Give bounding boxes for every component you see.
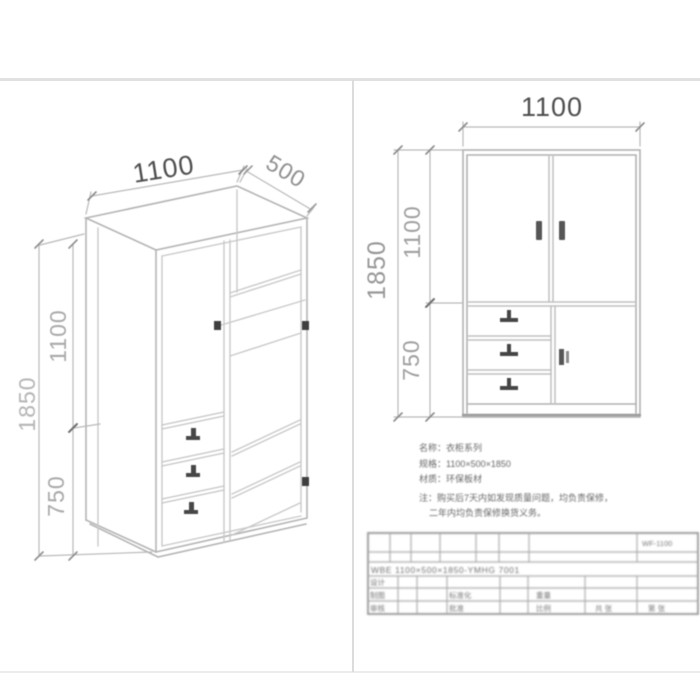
iso-dim-depth-label: 500: [262, 149, 311, 193]
front-lower-door-handle: [559, 349, 569, 365]
cad-drawing-page: 1100 500 1850 1100 750: [0, 0, 700, 700]
front-dim-height-label: 1850: [363, 240, 391, 300]
title-block-mid2-label: 标准化: [449, 590, 472, 600]
iso-drawers: [162, 412, 224, 503]
title-block-right3-label: 比例: [536, 603, 551, 613]
front-dim-upper-label: 1100: [399, 205, 425, 258]
note-line: 注：购买后7天内如发现质量问题，均负责保修，: [419, 491, 629, 507]
isometric-view: 1100 500 1850 1100 750: [14, 149, 316, 560]
iso-dim-upper-label: 1100: [45, 309, 71, 362]
title-block-row1-label: 设计: [370, 577, 385, 587]
title-block-code: WF-1100: [642, 539, 672, 548]
front-dim-width-label: 1100: [521, 92, 583, 122]
front-dim-lower-label: 750: [398, 339, 424, 380]
drawing-notes: 名称：衣柜系列 规格：1100×500×1850 材质：环保板材 注：购买后7天…: [419, 441, 629, 522]
iso-dim-height-label: 1850: [14, 376, 40, 431]
iso-dim-width-label: 1100: [131, 149, 197, 188]
title-block-row2-label: 制图: [370, 590, 385, 600]
title-block-sheet-no: 第 张: [648, 603, 666, 613]
title-block-spec: WBE 1100×500×1850-YMHG 7001: [371, 565, 520, 575]
title-block-sheet-total: 共 张: [595, 604, 613, 613]
front-drawer-handles: [500, 310, 518, 390]
title-block-row3-label: 审核: [370, 603, 385, 613]
front-view: 1100 1850 1100 750: [363, 92, 644, 421]
title-block: WF-1100 WBE 1100×500×1850-YMHG 7001 设计 制…: [368, 533, 698, 614]
note-line: 名称：衣柜系列: [419, 441, 629, 457]
note-line: 材质：环保板材: [419, 472, 629, 488]
iso-cabinet-interior: [98, 190, 301, 546]
iso-dim-lower-label: 750: [43, 475, 69, 516]
front-door-handles: [536, 221, 565, 240]
iso-drawer-handles: [184, 428, 200, 514]
wardrobe-technical-drawing: 1100 500 1850 1100 750: [0, 0, 700, 700]
front-dimensions: [394, 122, 644, 421]
note-line: 规格：1100×500×1850: [419, 457, 629, 473]
note-line: 二年内均负责保修换货义务。: [419, 506, 629, 522]
iso-shelves: [218, 270, 305, 535]
front-doors: [467, 155, 636, 306]
iso-cabinet-outline: [86, 186, 307, 557]
title-block-right2-label: 重量: [536, 591, 551, 600]
title-block-mid3-label: 批准: [449, 603, 464, 613]
